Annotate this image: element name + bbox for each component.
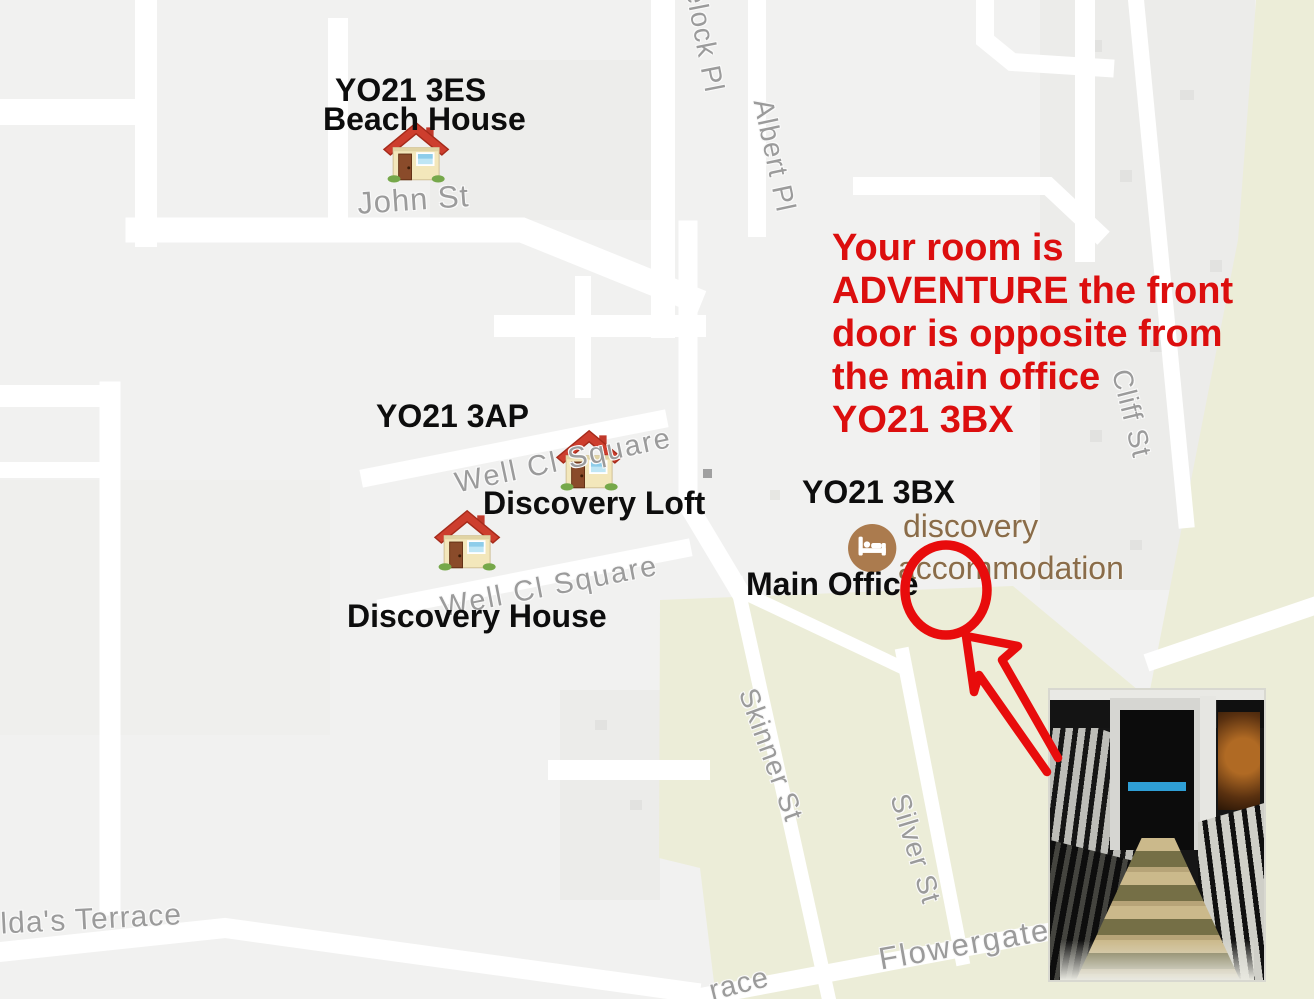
annotation-line: the main office [832, 356, 1233, 399]
label-cluster-postcode: YO21 3AP [376, 400, 529, 432]
poi-label-accommodation: accommodation [898, 550, 1124, 587]
entrance-photo [1048, 688, 1266, 982]
map-dot [703, 469, 712, 478]
label-beach-house-name: Beach House [323, 103, 526, 135]
annotation-line: door is opposite from [832, 313, 1233, 356]
annotation-text: Your room is ADVENTURE the front door is… [832, 227, 1233, 442]
poi-label-discovery: discovery [903, 508, 1038, 545]
photo-door [1120, 710, 1194, 850]
label-main-office: Main Office [746, 568, 918, 600]
photo-steps-fade [1060, 940, 1254, 980]
label-discovery-loft: Discovery Loft [483, 487, 705, 519]
photo-blue-sign [1128, 782, 1186, 791]
photo-lit-window [1218, 712, 1260, 810]
annotation-line: Your room is [832, 227, 1233, 270]
annotation-line: YO21 3BX [832, 399, 1233, 442]
label-discovery-house: Discovery House [347, 600, 607, 632]
annotation-line: ADVENTURE the front [832, 270, 1233, 313]
label-main-office-postcode: YO21 3BX [802, 476, 955, 508]
map-canvas: avelock Pl Albert Pl John St Well Cl Squ… [0, 0, 1314, 999]
